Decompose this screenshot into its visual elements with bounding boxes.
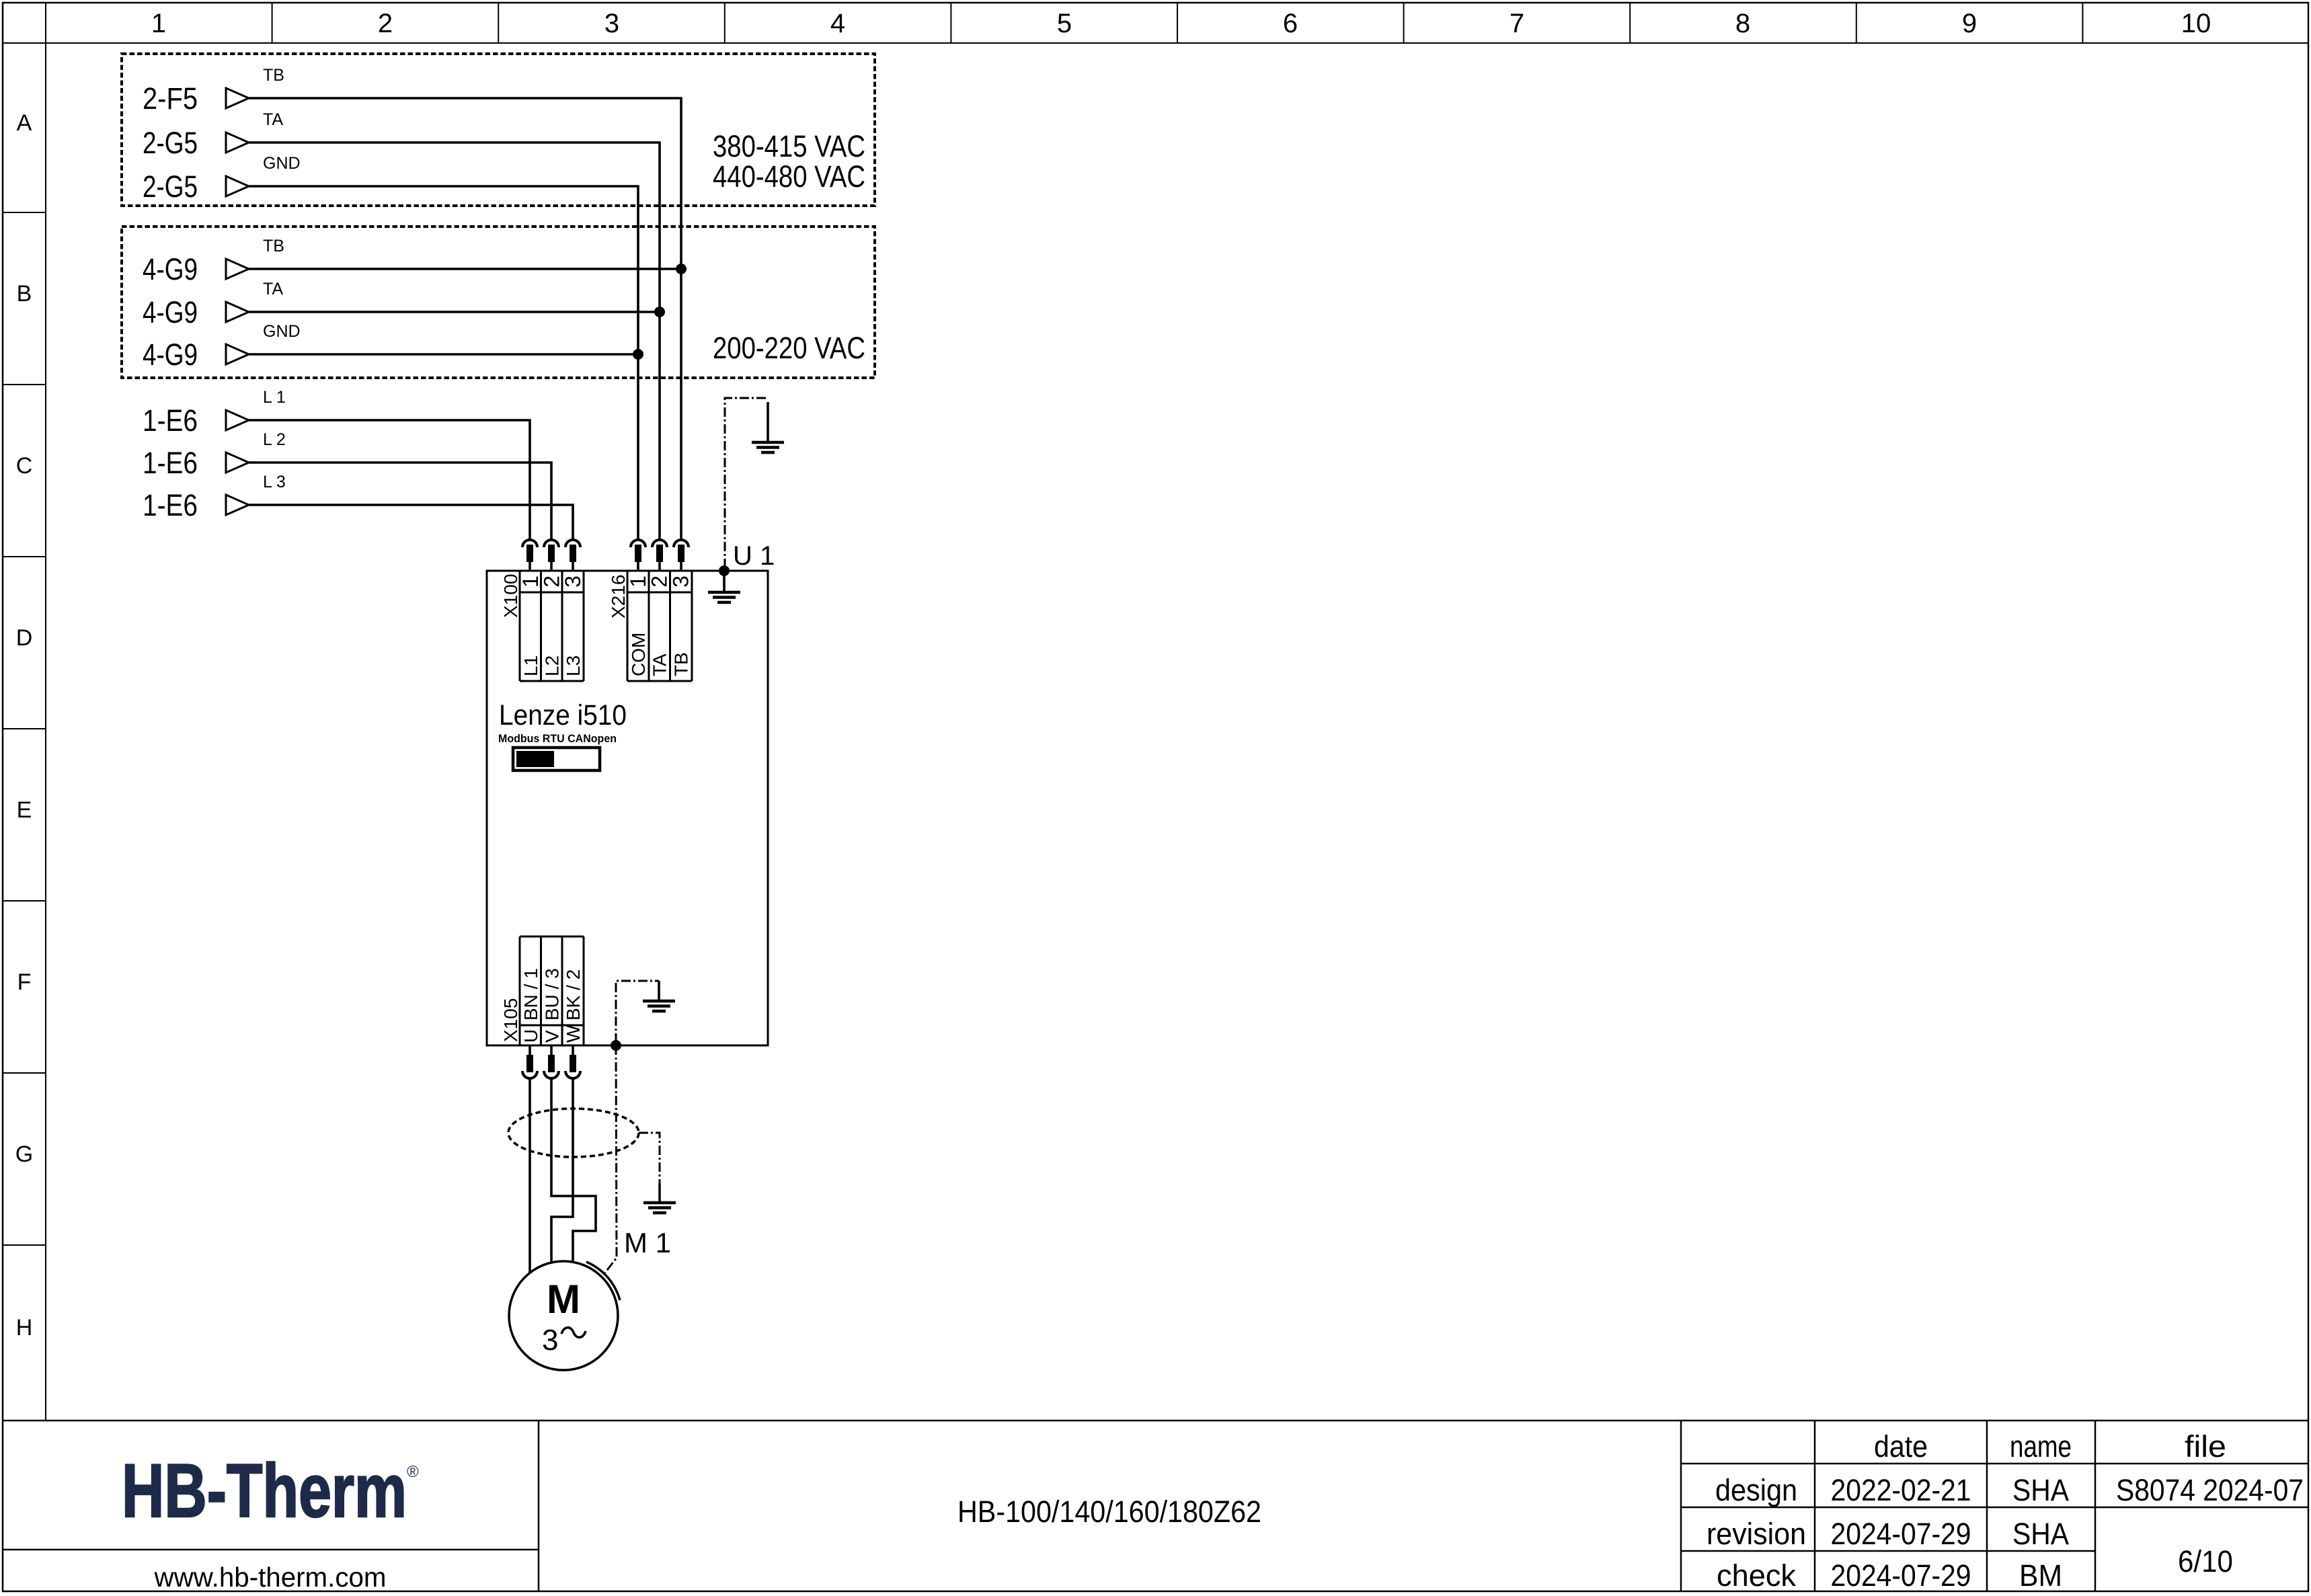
svg-text:L 1: L 1 [263,388,286,407]
svg-text:6/10: 6/10 [2178,1544,2233,1579]
svg-text:L2: L2 [542,655,563,676]
svg-text:revision: revision [1707,1517,1806,1551]
svg-text:1-E6: 1-E6 [143,488,198,522]
svg-text:BN / 1: BN / 1 [520,968,541,1021]
svg-text:1-E6: 1-E6 [143,446,198,480]
svg-text:L1: L1 [520,655,541,676]
svg-text:3: 3 [561,575,585,588]
svg-text:HB-Therm: HB-Therm [122,1449,407,1533]
svg-text:GND: GND [263,154,301,173]
svg-text:BK / 2: BK / 2 [563,969,584,1021]
svg-text:date: date [1874,1429,1928,1464]
svg-text:COM: COM [628,633,649,676]
svg-text:5: 5 [1057,9,1072,38]
svg-text:TB: TB [263,237,284,255]
svg-text:1: 1 [151,9,166,38]
svg-text:4-G9: 4-G9 [143,252,198,286]
svg-text:BU / 3: BU / 3 [542,968,563,1021]
svg-text:name: name [2010,1429,2072,1464]
svg-text:®: ® [407,1463,419,1481]
svg-text:TA: TA [263,280,283,298]
svg-text:Modbus RTU CANopen: Modbus RTU CANopen [498,733,617,745]
svg-text:L3: L3 [563,655,584,676]
svg-text:2: 2 [648,575,672,588]
svg-text:3: 3 [669,575,693,588]
svg-text:F: F [17,969,32,995]
svg-text:2024-07-29: 2024-07-29 [1831,1517,1971,1551]
svg-text:2022-02-21: 2022-02-21 [1831,1473,1971,1507]
svg-text:U 1: U 1 [733,541,775,571]
svg-text:4-G9: 4-G9 [143,295,198,329]
svg-text:L 2: L 2 [263,430,286,449]
svg-text:M 1: M 1 [624,1227,671,1259]
svg-text:200-220 VAC: 200-220 VAC [713,331,865,365]
svg-text:V: V [542,1030,563,1043]
svg-text:www.hb-therm.com: www.hb-therm.com [154,1562,387,1593]
svg-text:2-G5: 2-G5 [143,126,198,160]
svg-text:TA: TA [650,653,670,676]
svg-text:1-E6: 1-E6 [143,403,198,438]
svg-text:4: 4 [830,9,845,38]
svg-text:check: check [1717,1558,1796,1593]
svg-text:A: A [17,110,32,136]
svg-text:BM: BM [2019,1558,2062,1593]
svg-text:SHA: SHA [2012,1517,2069,1551]
svg-text:9: 9 [1962,9,1977,38]
svg-text:7: 7 [1510,9,1524,38]
svg-text:10: 10 [2181,9,2211,38]
svg-text:440-480 VAC: 440-480 VAC [713,159,865,194]
svg-text:C: C [16,453,33,479]
svg-text:HB-100/140/160/180Z62: HB-100/140/160/180Z62 [957,1494,1261,1529]
svg-text:Lenze i510: Lenze i510 [499,699,627,731]
svg-text:H: H [16,1315,33,1341]
svg-text:GND: GND [263,322,301,341]
svg-text:S8074 2024-07: S8074 2024-07 [2116,1473,2304,1507]
svg-text:B: B [17,281,32,307]
svg-text:8: 8 [1735,9,1750,38]
svg-text:L 3: L 3 [263,473,286,491]
svg-text:M: M [547,1277,580,1322]
svg-text:TB: TB [671,652,692,676]
svg-text:4-G9: 4-G9 [143,337,198,372]
svg-text:design: design [1715,1473,1797,1507]
svg-text:E: E [17,797,32,823]
svg-text:2-G5: 2-G5 [143,169,198,204]
svg-text:W: W [563,1025,584,1043]
svg-text:3: 3 [604,9,619,38]
svg-text:U: U [520,1029,541,1043]
svg-text:2-F5: 2-F5 [143,81,198,116]
svg-text:2: 2 [378,9,393,38]
svg-text:file: file [2185,1429,2226,1464]
svg-text:SHA: SHA [2012,1473,2069,1507]
svg-text:TB: TB [263,66,284,85]
svg-text:3: 3 [542,1324,558,1357]
svg-text:X105: X105 [500,998,521,1042]
svg-text:TA: TA [263,110,283,129]
svg-text:D: D [16,625,33,651]
svg-text:2024-07-29: 2024-07-29 [1831,1558,1971,1593]
svg-text:6: 6 [1283,9,1298,38]
svg-text:380-415 VAC: 380-415 VAC [713,129,865,163]
svg-text:G: G [15,1142,33,1167]
